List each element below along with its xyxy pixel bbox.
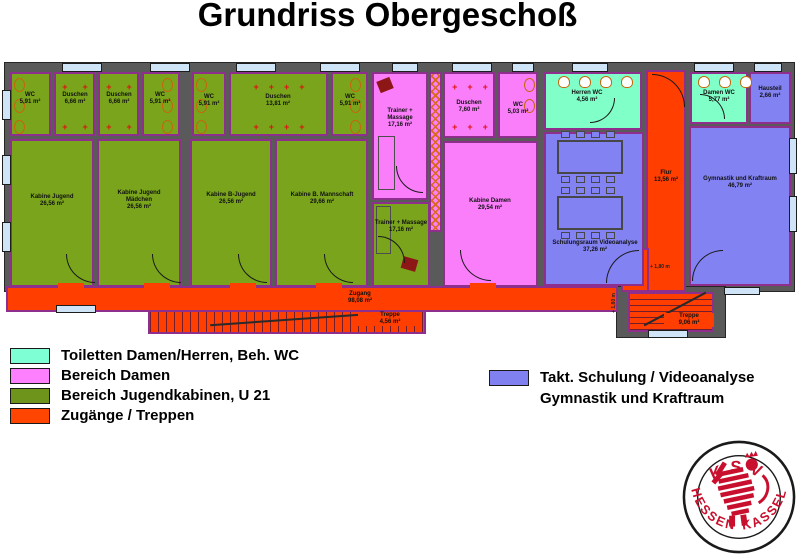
room-label-wc4: WC5,91 m²: [332, 94, 368, 108]
room-label-kabine3: Kabine B-Jugend26,56 m²: [202, 192, 260, 206]
room-label-duschen-damen: Duschen7,60 m²: [447, 100, 491, 114]
level-annotation: + 1,80 m: [650, 264, 670, 270]
window-symbol: [392, 63, 418, 72]
shower-cross-symbols: + + + +: [58, 77, 92, 137]
door-gap: [144, 283, 170, 291]
room-label-wc3: WC5,91 m²: [193, 94, 225, 108]
room-label-treppe-left: Treppe4,56 m²: [358, 312, 422, 326]
legend-label: Bereich Jugendkabinen, U 21: [61, 387, 270, 404]
shaft-symbol: [429, 72, 442, 232]
legend-item-schulung: Takt. Schulung / Videoanalyse: [489, 369, 755, 386]
room-label-wc2: WC5,91 m²: [142, 92, 178, 106]
door-gap: [316, 283, 342, 291]
room-label-kabine4: Kabine B. Mannschaft29,66 m²: [288, 192, 356, 206]
room-label-zugang: Zugang98,08 m²: [330, 291, 390, 305]
window-symbol: [452, 63, 492, 72]
window-symbol: [789, 196, 797, 232]
door-gap: [470, 283, 496, 291]
window-symbol: [62, 63, 102, 72]
room-label-trainer1: Trainer + Massage17,16 m²: [376, 108, 424, 130]
legend-label-continued: Gymnastik und Kraftraum: [540, 390, 724, 407]
legend-label: Takt. Schulung / Videoanalyse: [540, 369, 755, 386]
level-annotation: + 1,80 m: [611, 293, 617, 313]
window-symbol: [2, 222, 11, 252]
chairs: [561, 131, 615, 138]
legend-item-damen: Bereich Damen: [10, 367, 170, 384]
legend-label: Bereich Damen: [61, 367, 170, 384]
window-symbol: [572, 63, 608, 72]
window-symbol: [754, 63, 782, 72]
legend-swatch-zugaenge: [10, 408, 50, 424]
legend-label: Toiletten Damen/Herren, Beh. WC: [61, 347, 299, 364]
meeting-table: [557, 140, 623, 174]
room-label-gymnastik: Gymnastik und Kraftraum46,79 m²: [698, 176, 782, 190]
window-symbol: [2, 155, 11, 185]
legend-swatch-damen: [10, 368, 50, 384]
room-label-duschen2: Duschen6,66 m²: [100, 92, 138, 106]
room-label-flur: Flur13,56 m²: [650, 170, 682, 184]
legend-swatch-toiletten: [10, 348, 50, 364]
chairs: [561, 232, 615, 239]
window-symbol: [56, 305, 96, 313]
door-gap: [58, 283, 84, 291]
window-symbol: [320, 63, 360, 72]
meeting-table: [557, 196, 623, 230]
window-symbol: [724, 287, 760, 295]
room-zugang: [6, 286, 618, 312]
legend-item-toiletten: Toiletten Damen/Herren, Beh. WC: [10, 347, 299, 364]
window-symbol: [2, 90, 11, 120]
shower-cross-symbols: + + + +: [102, 77, 136, 137]
room-label-kabine2: Kabine Jugend Mädchen26,56 m²: [110, 190, 168, 212]
room-label-wc1: WC5,91 m²: [12, 92, 48, 106]
floorplan-page: Grundriss Obergeschoß: [0, 0, 800, 556]
room-label-treppe-right: Treppe9,06 m²: [664, 313, 714, 327]
chairs: [561, 187, 615, 194]
room-label-herren-wc: Herren WC4,56 m²: [562, 90, 612, 104]
room-label-hausteil: Hausteil2,66 m²: [750, 86, 790, 100]
window-symbol: [512, 63, 534, 72]
legend-label: Zugänge / Treppen: [61, 407, 194, 424]
toilet-fixtures: [558, 76, 633, 88]
massage-bench: [378, 136, 395, 190]
door-gap: [230, 283, 256, 291]
room-label-damen-wc: Damen WC5,77 m²: [698, 90, 740, 104]
ksv-hessen-kassel-logo: KSV HESSEN KASSEL: [680, 438, 798, 556]
room-label-kabine-damen: Kabine Damen29,54 m²: [456, 198, 524, 212]
room-label-duschen3: Duschen13,81 m²: [248, 94, 308, 108]
room-label-schulungsraum: Schulungsraum Videoanalyse37,26 m²: [550, 240, 640, 254]
legend-item-jugendkabinen: Bereich Jugendkabinen, U 21: [10, 387, 270, 404]
window-symbol: [789, 138, 797, 174]
toilet-fixtures: [698, 76, 752, 88]
page-title: Grundriss Obergeschoß: [0, 0, 775, 34]
legend-swatch-jugendkabinen: [10, 388, 50, 404]
window-symbol: [694, 63, 734, 72]
room-label-wc-damen: WC5,03 m²: [501, 102, 535, 116]
room-label-kabine1: Kabine Jugend26,56 m²: [26, 194, 78, 208]
chairs: [561, 176, 615, 183]
room-label-trainer2: Trainer + Massage17,16 m²: [374, 220, 428, 234]
window-symbol: [236, 63, 276, 72]
legend-swatch-schulung: [489, 370, 529, 386]
legend-item-zugaenge: Zugänge / Treppen: [10, 407, 194, 424]
room-label-duschen1: Duschen6,66 m²: [56, 92, 94, 106]
window-symbol: [648, 330, 688, 338]
room-kabine-4: [275, 139, 368, 287]
window-symbol: [150, 63, 190, 72]
